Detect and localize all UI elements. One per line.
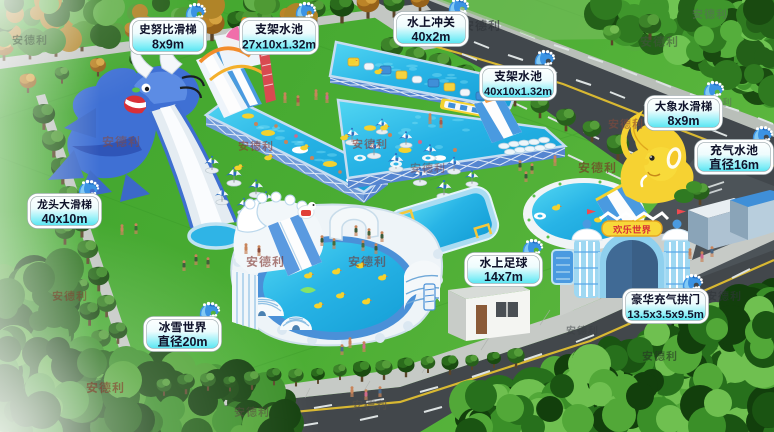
svg-text:40x2m: 40x2m [412,30,451,44]
svg-text:14x7m: 14x7m [484,270,523,284]
svg-text:27x10x1.32m: 27x10x1.32m [242,38,316,52]
svg-text:8x9m: 8x9m [668,114,700,128]
svg-text:8x9m: 8x9m [152,38,184,52]
svg-text:40x10m: 40x10m [42,212,88,226]
svg-text:16m: 16m [734,158,759,172]
svg-text:40x10x1.32m: 40x10x1.32m [484,86,552,98]
svg-text:20m: 20m [183,335,208,349]
svg-text:13.5x3.5x9.5m: 13.5x3.5x9.5m [627,309,704,321]
